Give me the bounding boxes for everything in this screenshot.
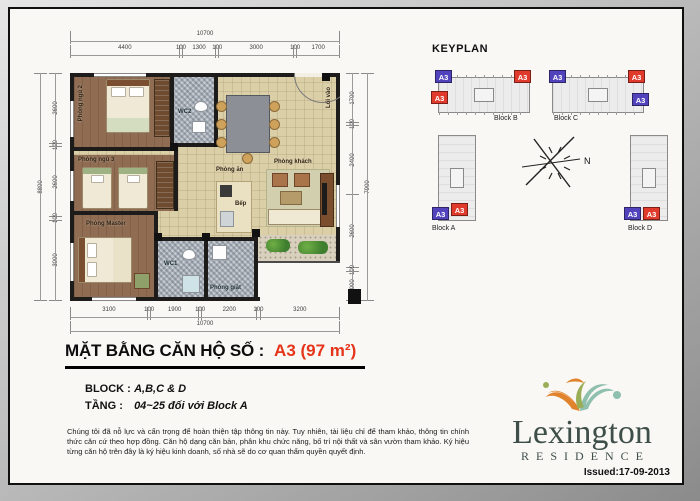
dim-segment: 10700: [70, 321, 340, 334]
armchair: [134, 273, 150, 289]
kitchen-sink: [220, 211, 234, 227]
dining-chair: [269, 101, 280, 112]
headboard: [119, 168, 147, 174]
blanket: [113, 238, 131, 282]
wardrobe: [154, 79, 170, 137]
floor-label: TẦNG :: [85, 398, 131, 415]
unit-badge: A3: [628, 70, 645, 83]
bed-single: [118, 167, 148, 209]
window: [92, 297, 136, 301]
apartment-floor-plan: Phòng ngủ 2 WC2 Phòng ngủ 3 Phòng Master: [70, 73, 340, 301]
exterior-column: [348, 289, 361, 304]
window: [70, 243, 74, 281]
building-core: [588, 88, 608, 102]
room-label-wc1: WC1: [164, 261, 177, 267]
room-label-living: Phòng khách: [274, 159, 312, 165]
sink: [192, 121, 206, 133]
bed-double: [106, 79, 150, 133]
building-core: [642, 168, 656, 188]
armchair: [294, 173, 310, 187]
keyplan-block-d: A3 A3 Block D: [626, 135, 686, 240]
floor-plan-area: 10700 4400 100 1300 100 3000 100 1700 88…: [30, 27, 395, 347]
toilet: [194, 101, 208, 112]
building-core: [450, 168, 464, 188]
dim-segment: 1700: [346, 73, 359, 122]
dim-segment: 8800: [34, 73, 47, 301]
dining-chair: [242, 153, 253, 164]
wall: [254, 231, 258, 297]
dim-segment: 3000: [218, 45, 292, 58]
wall: [336, 73, 340, 261]
dim-segment: 2200: [201, 307, 256, 320]
plant: [266, 239, 290, 252]
wardrobe: [156, 161, 174, 209]
headboard: [83, 168, 111, 174]
floor-value: 04~25 đối với Block A: [134, 400, 248, 412]
room-label-wc2: WC2: [178, 109, 191, 115]
unit-badge: A3: [624, 207, 641, 220]
window: [94, 73, 146, 77]
plant: [298, 241, 328, 254]
unit-badge: A3: [514, 70, 531, 83]
brochure-page: 10700 4400 100 1300 100 3000 100 1700 88…: [8, 7, 684, 485]
keyplan-title: KEYPLAN: [432, 43, 488, 55]
headboard: [79, 238, 85, 282]
sofa: [268, 209, 326, 225]
wall: [70, 211, 158, 215]
pillow: [91, 175, 104, 183]
block-name: Block C: [554, 115, 578, 122]
wall: [170, 73, 174, 151]
keyplan-block-c: A3 A3 A3 Block C: [552, 77, 652, 127]
dim-bottom-total: 10700: [70, 321, 340, 334]
column: [202, 233, 210, 241]
room-label-entry: Lối vào: [326, 87, 332, 108]
dim-segment: 2600: [49, 73, 62, 143]
dining-table: [226, 95, 270, 153]
plan-title-label: MẶT BẰNG CĂN HỘ SỐ :: [65, 341, 264, 361]
keyplan-block-b: A3 A3 A3 Block B: [438, 77, 538, 127]
coffee-table: [280, 191, 302, 205]
block-name: Block B: [494, 115, 518, 122]
column: [252, 229, 260, 237]
wall: [174, 143, 218, 147]
room-label-master: Phòng Master: [86, 221, 126, 227]
north-label: N: [584, 156, 591, 166]
outside-cutout: [258, 261, 340, 301]
logo-ornament-icon: [522, 373, 642, 417]
window: [70, 101, 74, 137]
unit-badge: A3: [435, 70, 452, 83]
unit-badge: A3: [549, 70, 566, 83]
dining-chair: [269, 119, 280, 130]
dining-chair: [216, 101, 227, 112]
room-label-bedroom3: Phòng ngủ 3: [78, 157, 114, 163]
dim-segment: 1900: [150, 307, 198, 320]
dim-segment: 3100: [70, 307, 147, 320]
wall: [154, 215, 158, 297]
pillow: [87, 262, 97, 277]
tv: [322, 183, 327, 215]
dim-segment: 7900: [361, 73, 374, 301]
bed-single: [82, 167, 112, 209]
issued-date: Issued:17-09-2013: [584, 467, 670, 478]
floor-line: TẦNG : 04~25 đối với Block A: [85, 398, 248, 415]
disclaimer-text: Chúng tôi đã nỗ lực và cẩn trọng để hoàn…: [67, 427, 469, 457]
building-core: [474, 88, 494, 102]
block-name: Block D: [628, 225, 652, 232]
dim-segment: 10700: [70, 31, 340, 44]
block-name: Block A: [432, 225, 455, 232]
room-label-kitchen: Bếp: [235, 201, 246, 207]
dining-chair: [269, 137, 280, 148]
pillow: [111, 87, 126, 97]
block-line: BLOCK : A,B,C & D: [85, 381, 248, 398]
dim-segment: 3200: [260, 307, 340, 320]
dim-right-segments: 1700 100 2400 2600 100 1000: [346, 73, 359, 301]
dining-chair: [216, 137, 227, 148]
stove: [220, 185, 232, 197]
dim-top-total: 10700: [70, 31, 340, 44]
wall: [204, 241, 208, 297]
logo-subtitle: RESIDENCE: [482, 449, 682, 464]
dim-bottom-segments: 3100 100 1900 100 2200 100 3200: [70, 307, 340, 320]
dim-segment: 1700: [296, 45, 340, 58]
washing-machine: [212, 245, 227, 260]
blanket: [107, 118, 149, 132]
door-swing-arc: [294, 73, 340, 103]
dim-segment: 1300: [182, 45, 215, 58]
unit-badge: A3: [431, 91, 448, 104]
armchair: [272, 173, 288, 187]
block-label: BLOCK :: [85, 381, 131, 398]
dim-segment: 4400: [70, 45, 179, 58]
window: [336, 185, 340, 227]
unit-badge: A3: [432, 207, 449, 220]
room-label-laundry: Phòng giặt: [210, 285, 241, 291]
block-value: A,B,C & D: [134, 383, 186, 395]
dim-segment: 2600: [346, 194, 359, 268]
dim-segment: 2400: [346, 125, 359, 193]
room-label-bedroom2: Phòng ngủ 2: [78, 85, 84, 121]
plan-title: MẶT BẰNG CĂN HỘ SỐ : A3 (97 m²): [65, 341, 365, 369]
window: [70, 171, 74, 201]
pillow: [87, 243, 97, 258]
compass-north-icon: N: [518, 131, 598, 195]
pillow: [127, 175, 140, 183]
column: [154, 233, 162, 241]
dim-left-segments: 2600 100 2600 100 3000: [49, 73, 62, 301]
unit-badge: A3: [632, 93, 649, 106]
keyplan-block-a: A3 A3 Block A: [434, 135, 494, 240]
dim-segment: 2600: [49, 146, 62, 216]
keyplan: KEYPLAN A3 A3 A3 Block B A3 A3 A3 Block …: [422, 35, 684, 240]
wall: [174, 151, 178, 211]
shower: [182, 275, 200, 293]
bed-double: [78, 237, 132, 283]
logo-name: Lexington: [482, 418, 682, 448]
block-info: BLOCK : A,B,C & D TẦNG : 04~25 đối với B…: [85, 381, 248, 415]
room-label-dining: Phòng ăn: [216, 167, 243, 173]
dim-left-total: 8800: [34, 73, 47, 301]
plan-title-unit: A3 (97 m²): [274, 341, 356, 361]
toilet: [182, 249, 196, 260]
unit-badge: A3: [643, 207, 660, 220]
headboard: [107, 80, 149, 86]
dim-right-total: 7900: [361, 73, 374, 301]
unit-badge: A3: [451, 203, 468, 216]
lexington-logo: Lexington RESIDENCE: [482, 373, 682, 464]
column: [170, 143, 178, 151]
dim-segment: 3000: [49, 220, 62, 301]
wall: [70, 147, 174, 151]
dining-chair: [216, 119, 227, 130]
dim-top-segments: 4400 100 1300 100 3000 100 1700: [70, 45, 340, 58]
pillow: [129, 87, 144, 97]
